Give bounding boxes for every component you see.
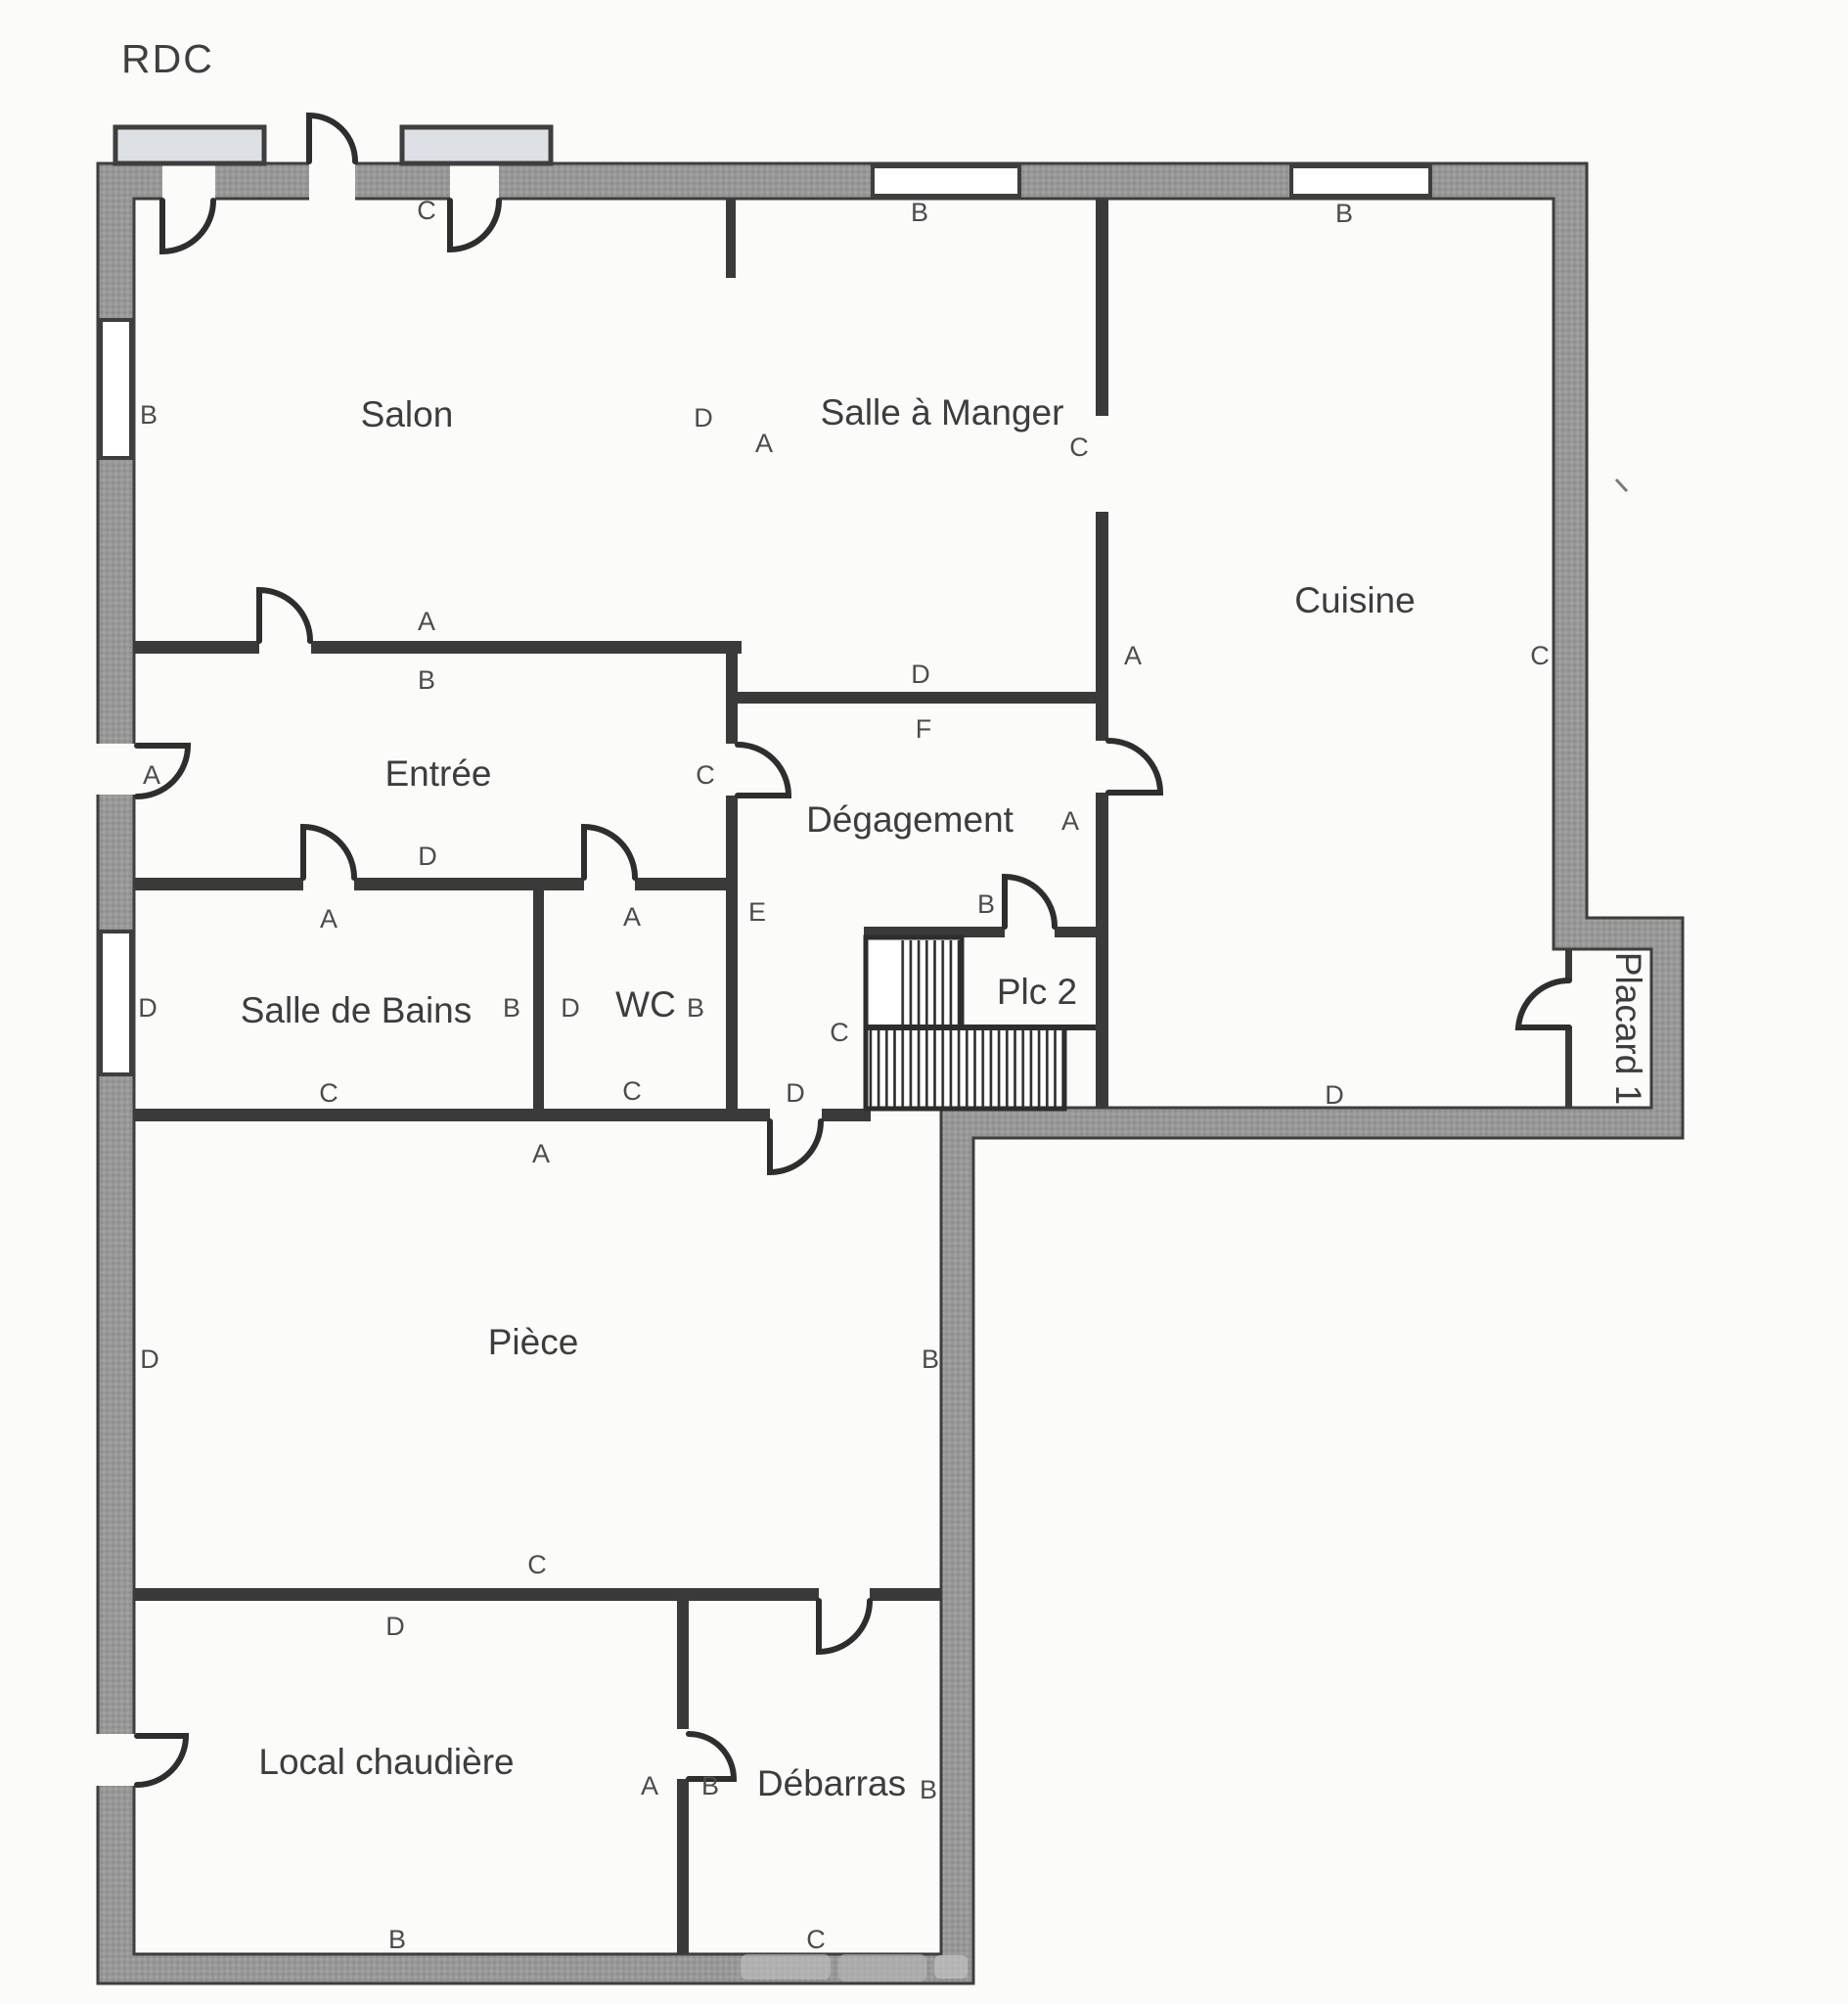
interior-walls <box>134 199 1572 1954</box>
door-salon-top-2 <box>450 201 499 250</box>
letter-salon-side-wall: A <box>418 607 435 636</box>
letter-chaudiere-top: D <box>385 1612 405 1641</box>
wall-degagement-cuisine-lower <box>1096 793 1108 1108</box>
letter-entree-south-door: D <box>418 842 437 871</box>
letter-wc-top: A <box>623 902 641 932</box>
floor-plan-svg: RDC Salon Salle à Manger Cuisine Entrée … <box>0 0 1848 2004</box>
wall-salon-entree-a <box>134 641 259 654</box>
letter-entree-degagement-door: C <box>696 760 715 790</box>
wall-sam-cuisine-mid <box>1096 512 1108 741</box>
wall-plc2-north-b <box>1055 927 1096 937</box>
wall-salon-entree-b <box>311 641 742 654</box>
letter-sdb-bottom: C <box>319 1078 338 1108</box>
wall-entree-south-c <box>635 878 726 890</box>
letter-left-window-salon: B <box>140 400 158 430</box>
chaudiere-left-door-opening <box>95 1734 137 1786</box>
letter-piece-bottom: C <box>527 1550 547 1579</box>
letter-chaudiere-door-right: B <box>701 1771 719 1800</box>
wall-letter-labels: C B B B D A C A B A C D F A C D A E B A … <box>138 196 1550 1954</box>
letter-sdb-right: B <box>503 993 520 1023</box>
letter-piece-right: B <box>922 1344 939 1374</box>
door-salon-top-1 <box>162 201 213 251</box>
door-chaudiere-left <box>137 1736 186 1785</box>
letter-sdb-top: A <box>320 904 338 934</box>
letter-degagement-north-wall: F <box>916 714 932 744</box>
letter-piece-north-door: D <box>786 1078 805 1108</box>
shutter-box-right <box>402 127 551 163</box>
letter-sam-opening: C <box>1069 433 1089 462</box>
room-label-placard1: Placard 1 <box>1608 952 1648 1105</box>
stairs <box>866 937 1096 1109</box>
letter-sdb-left-window: D <box>138 993 158 1023</box>
wall-sdb-wc-divider <box>533 890 544 1111</box>
letter-cuisine-bottom: D <box>1325 1080 1344 1110</box>
entrance-door-opening <box>309 160 355 202</box>
letter-entree-side-wall: B <box>418 665 435 695</box>
shutter-boxes <box>115 127 551 163</box>
wall-piece-south-a <box>134 1588 819 1601</box>
letter-degagement-east: A <box>1061 806 1079 836</box>
room-label-plc2: Plc 2 <box>997 972 1077 1012</box>
entree-left-door-opening <box>95 744 137 795</box>
letter-degagement-west-wall: E <box>748 897 766 927</box>
room-label-local-chaudiere: Local chaudière <box>258 1742 514 1782</box>
door-arcs <box>137 115 1569 1785</box>
scan-artifact-tick <box>1616 479 1627 491</box>
placard-face-upper <box>1565 949 1572 980</box>
watermark-block <box>838 1954 926 1981</box>
room-label-debarras: Débarras <box>757 1763 906 1803</box>
door-wc-entree <box>584 827 635 878</box>
letter-plc2-door: B <box>977 889 995 919</box>
salon-door-opening-2 <box>450 160 499 202</box>
letter-entree-left-door: A <box>143 760 160 790</box>
wall-entree-south-b <box>354 878 584 890</box>
door-plc2-degagement <box>1005 877 1055 927</box>
floor-plan-page: RDC Salon Salle à Manger Cuisine Entrée … <box>0 0 1848 2004</box>
stairs-upper-flight-hatch <box>896 940 960 1025</box>
letter-chaudiere-bottom: B <box>388 1925 406 1954</box>
room-label-salle-de-bains: Salle de Bains <box>241 990 473 1030</box>
wall-chaudiere-debarras-b <box>677 1779 689 1954</box>
door-entrance-outside <box>309 115 355 161</box>
room-label-wc: WC <box>615 984 676 1025</box>
stairs-mid-landing-line <box>866 1025 1096 1030</box>
watermark-block <box>934 1955 968 1979</box>
letter-debarras-right: B <box>920 1775 937 1804</box>
window-salon-left <box>101 320 131 458</box>
window-salle-a-manger <box>873 166 1019 196</box>
salon-door-opening-1 <box>162 160 215 202</box>
room-label-piece: Pièce <box>488 1322 579 1362</box>
wall-piece-south-b <box>870 1588 941 1601</box>
letter-wc-bottom: C <box>622 1076 642 1106</box>
wall-degagement-west-b <box>726 796 738 1118</box>
door-entree-degagement <box>738 745 789 796</box>
letter-piece-left: D <box>140 1344 159 1374</box>
letter-sam-divider: A <box>755 429 773 458</box>
letter-wc-right: B <box>687 993 704 1023</box>
wall-degagement-north <box>738 692 1096 704</box>
wall-degagement-west-a <box>726 654 738 744</box>
wall-chaudiere-debarras-a <box>677 1601 689 1729</box>
letter-salon-divider: D <box>694 403 713 433</box>
letter-chaudiere-door-left: A <box>641 1771 658 1800</box>
stairs-lower-flight <box>866 1027 1064 1109</box>
wall-sam-cuisine-upper <box>1096 199 1108 416</box>
letter-top-window-sam: B <box>911 198 928 227</box>
window-salle-de-bains-left <box>101 932 131 1074</box>
letter-stairs-left: C <box>830 1018 849 1047</box>
room-label-entree: Entrée <box>384 753 491 794</box>
door-placard1 <box>1518 980 1569 1027</box>
wall-entree-south-a <box>134 878 303 890</box>
letter-debarras-bottom: C <box>806 1925 826 1954</box>
letter-top-window-cuisine: B <box>1335 199 1353 228</box>
door-entree-salon <box>259 590 310 641</box>
room-label-cuisine: Cuisine <box>1294 580 1415 620</box>
watermark-block <box>741 1954 831 1980</box>
letter-sam-side-degagement-wall: D <box>911 660 930 689</box>
door-sdb-entree <box>303 827 354 878</box>
door-piece-debarras <box>819 1601 870 1652</box>
letter-top-door-salon: C <box>417 196 436 225</box>
page-title: RDC <box>121 36 214 81</box>
letter-cuisine-east-wall: C <box>1530 641 1550 670</box>
placard-face-lower <box>1565 1027 1572 1108</box>
letter-piece-top: A <box>532 1139 550 1168</box>
door-degagement-cuisine <box>1108 741 1160 793</box>
wall-piece-north-a <box>134 1109 770 1121</box>
shutter-box-left <box>115 127 264 163</box>
room-label-salon: Salon <box>361 394 454 434</box>
windows <box>101 166 1430 1074</box>
window-cuisine <box>1291 166 1430 196</box>
wall-salon-sam-divider <box>726 199 736 278</box>
room-label-degagement: Dégagement <box>806 799 1014 840</box>
door-degagement-piece <box>770 1121 821 1172</box>
letter-cuisine-west-door: A <box>1124 641 1142 670</box>
room-label-salle-a-manger: Salle à Manger <box>821 392 1064 433</box>
letter-wc-left: D <box>561 993 580 1023</box>
